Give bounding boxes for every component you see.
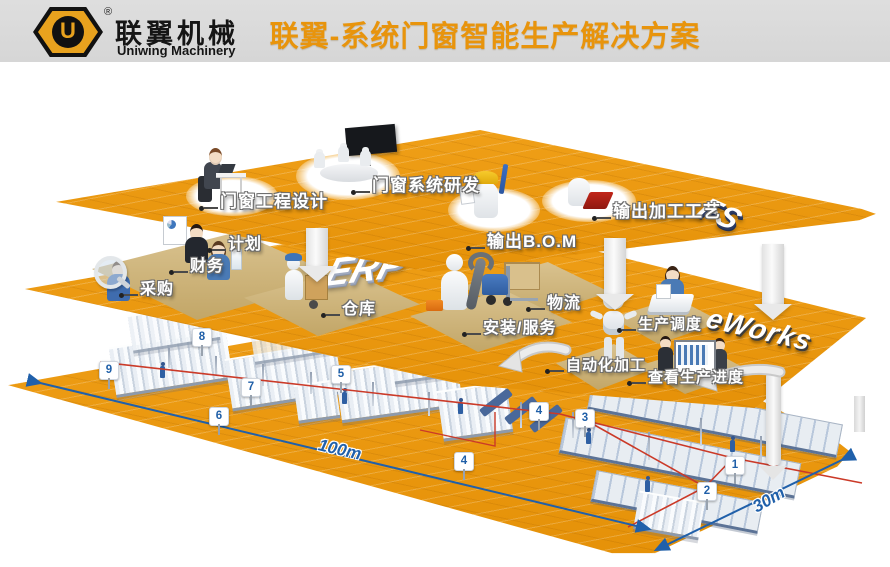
worker-figure <box>342 392 347 404</box>
marker-1: 1 <box>725 456 745 475</box>
pole <box>648 432 650 460</box>
registered-trademark: ® <box>104 6 112 18</box>
marker-4b: 4 <box>454 452 474 471</box>
flow-arrow-fs-to-erp-icon <box>306 228 328 266</box>
fork <box>510 298 538 301</box>
head <box>209 148 222 165</box>
brand-name-en: Uniwing Machinery <box>117 43 235 58</box>
flipchart <box>163 216 187 245</box>
robot-arm <box>623 310 637 321</box>
uniwing-logo-icon: U <box>33 7 103 57</box>
station-label-door-window-design: 门窗工程设计 <box>220 187 328 212</box>
robot-arm <box>589 310 603 321</box>
wheel <box>486 295 496 305</box>
station-label-procurement: 采购 <box>140 275 174 299</box>
station-label-auto-machining: 自动化加工 <box>566 354 646 375</box>
station-label-warehouse: 仓库 <box>342 295 376 319</box>
station-label-logistics: 物流 <box>547 289 581 313</box>
white-figure-body <box>441 271 468 310</box>
forklift-cab <box>482 274 508 295</box>
marker-3: 3 <box>575 409 595 428</box>
station-label-view-progress: 查看生产进度 <box>648 366 744 387</box>
pole <box>572 412 574 438</box>
forklift-figure <box>476 262 548 314</box>
pencil <box>499 164 509 194</box>
attendee <box>360 150 371 166</box>
machinery-cnc <box>437 381 513 441</box>
laptop <box>218 164 235 173</box>
pole <box>428 392 430 416</box>
desk <box>647 294 694 312</box>
pole <box>700 418 702 446</box>
worker-figure <box>160 366 165 378</box>
station-label-plan: 计划 <box>228 230 262 254</box>
marker-4a: 4 <box>529 402 549 421</box>
pole <box>215 356 217 376</box>
worker-figure <box>730 440 735 452</box>
toolbox <box>426 300 443 311</box>
attendee <box>314 152 325 168</box>
attendee <box>338 146 349 162</box>
marker-8: 8 <box>192 328 212 347</box>
progress-board-chart <box>678 345 708 365</box>
station-label-dispatch: 生产调度 <box>638 313 702 334</box>
marker-6: 6 <box>209 407 229 426</box>
pole <box>520 402 522 428</box>
pole <box>262 364 264 386</box>
pole <box>168 348 170 368</box>
station-label-system-rd: 门窗系统研发 <box>372 171 480 196</box>
worker-figure <box>645 480 650 492</box>
presentation-screen <box>345 124 397 156</box>
worker-figure <box>586 432 591 444</box>
station-label-install-service: 安装/服务 <box>483 314 556 338</box>
support-pillar <box>854 396 865 432</box>
station-label-output-bom: 输出B.O.M <box>487 227 577 252</box>
flow-pipe-to-floor-icon <box>766 370 781 466</box>
marker-5: 5 <box>331 365 351 384</box>
machinery-box <box>293 379 340 423</box>
trolley-wheel <box>309 300 318 309</box>
station-label-finance: 财务 <box>190 252 224 276</box>
logo-letter: U <box>52 16 84 48</box>
page-title: 联翼-系统门窗智能生产解决方案 <box>245 13 725 55</box>
cap <box>285 253 302 261</box>
station-label-output-craft: 输出加工工艺 <box>613 197 721 222</box>
flow-arrow-right-down-icon <box>762 244 784 304</box>
flow-arrow-bom-down-icon <box>604 238 626 294</box>
head <box>446 254 463 271</box>
meeting-table <box>320 164 378 182</box>
paper <box>656 284 671 299</box>
pole <box>372 382 374 406</box>
worker-figure <box>458 402 463 414</box>
solution-diagram: U ® 联翼机械 Uniwing Machinery 联翼-系统门窗智能生产解决… <box>0 0 890 567</box>
marker-7: 7 <box>241 378 261 397</box>
marker-2: 2 <box>697 482 717 501</box>
pole <box>310 372 312 394</box>
pole <box>760 436 762 464</box>
chart-glyph <box>167 220 176 229</box>
marker-9: 9 <box>99 361 119 380</box>
header-bar: U ® 联翼机械 Uniwing Machinery 联翼-系统门窗智能生产解决… <box>0 0 890 62</box>
